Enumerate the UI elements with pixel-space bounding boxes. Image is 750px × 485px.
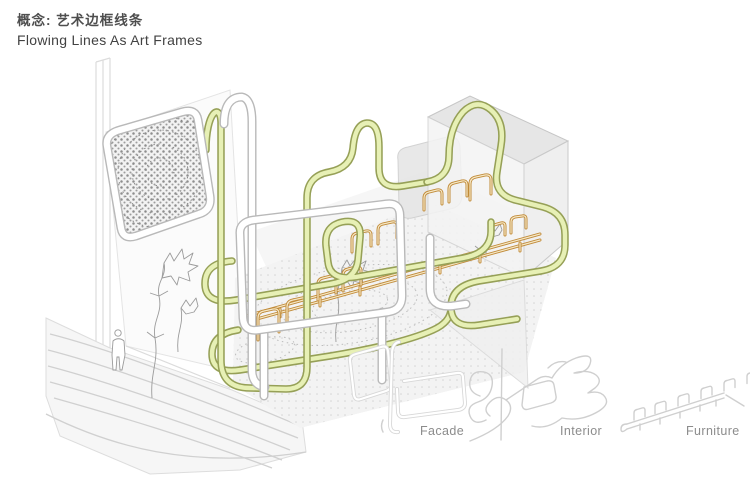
facade-art-panel	[104, 111, 216, 237]
legend-label-furniture: Furniture	[686, 424, 740, 438]
axonometric-concept-drawing	[0, 0, 750, 485]
page-root: 概念: 艺术边框线条 Flowing Lines As Art Frames	[0, 0, 750, 485]
legend-label-interior: Interior	[560, 424, 602, 438]
legend-label-facade: Facade	[420, 424, 464, 438]
legend-furniture-drawing	[621, 371, 750, 431]
